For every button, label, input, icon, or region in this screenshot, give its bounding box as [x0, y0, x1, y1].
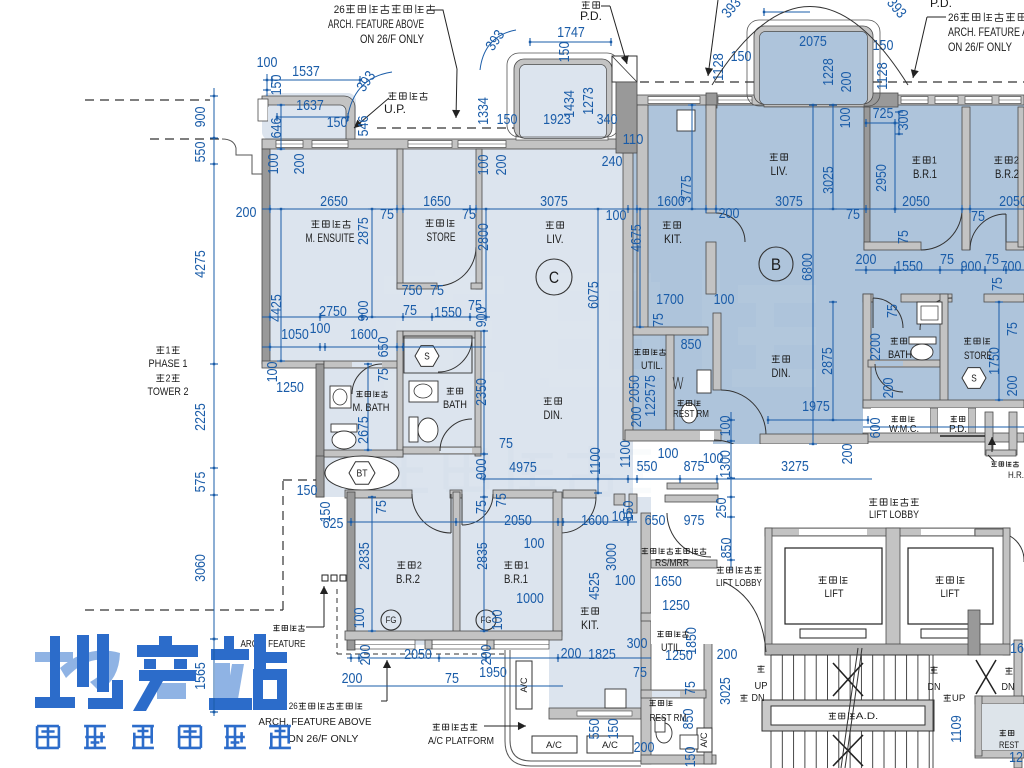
svg-text:2050: 2050 [504, 512, 532, 529]
svg-text:550: 550 [586, 719, 603, 740]
svg-text:1700: 1700 [656, 291, 684, 308]
svg-text:2800: 2800 [475, 223, 492, 251]
svg-text:100: 100 [475, 155, 492, 176]
svg-text:2875: 2875 [355, 217, 372, 245]
svg-text:75: 75 [430, 282, 444, 299]
svg-text:2: 2 [166, 374, 171, 385]
svg-text:ON 26/F ONLY: ON 26/F ONLY [360, 32, 424, 46]
svg-text:BATH: BATH [443, 399, 467, 411]
svg-text:KIT.: KIT. [581, 618, 599, 632]
svg-text:200: 200 [493, 155, 510, 176]
svg-text:1128: 1128 [874, 62, 891, 90]
svg-text:600: 600 [867, 418, 884, 439]
svg-text:100: 100 [351, 608, 368, 629]
svg-text:150: 150 [556, 42, 573, 63]
svg-text:75: 75 [499, 435, 513, 452]
svg-text:B.R.2: B.R.2 [995, 167, 1019, 181]
svg-text:PHASE 1: PHASE 1 [149, 358, 188, 370]
svg-text:900: 900 [473, 307, 490, 328]
svg-text:LIV.: LIV. [771, 164, 788, 178]
svg-text:BATH: BATH [888, 349, 912, 361]
svg-text:100: 100 [489, 610, 506, 631]
svg-text:725: 725 [873, 105, 894, 122]
svg-text:850: 850 [681, 336, 702, 353]
svg-text:2075: 2075 [799, 33, 827, 50]
svg-text:850: 850 [718, 538, 735, 559]
svg-text:A/C: A/C [546, 740, 563, 750]
svg-text:26: 26 [334, 4, 345, 16]
svg-text:A.D.: A.D. [856, 711, 879, 721]
svg-text:100: 100 [658, 445, 679, 462]
svg-text:200: 200 [357, 645, 374, 666]
svg-text:75: 75 [895, 230, 912, 244]
svg-text:200: 200 [717, 646, 738, 663]
svg-text:3060: 3060 [192, 554, 209, 582]
svg-text:150: 150 [620, 501, 637, 522]
svg-text:100: 100 [615, 572, 636, 589]
svg-text:200: 200 [561, 645, 582, 662]
svg-text:150: 150 [873, 37, 894, 54]
svg-text:2050: 2050 [404, 646, 432, 663]
svg-text:200: 200 [634, 739, 655, 756]
svg-text:750: 750 [402, 282, 423, 299]
svg-text:P.D.: P.D. [580, 9, 602, 23]
svg-text:240: 240 [602, 153, 623, 170]
svg-text:1228: 1228 [820, 58, 837, 86]
svg-text:1637: 1637 [296, 97, 324, 114]
svg-text:LIFT LOBBY: LIFT LOBBY [869, 509, 920, 521]
svg-text:75: 75 [642, 375, 659, 389]
svg-text:1050: 1050 [281, 326, 309, 343]
svg-text:DN: DN [1002, 682, 1015, 693]
svg-text:150: 150 [682, 747, 699, 768]
svg-text:DN: DN [752, 693, 765, 704]
svg-text:2350: 2350 [473, 378, 490, 406]
svg-text:75: 75 [380, 206, 394, 223]
svg-text:2: 2 [1014, 156, 1019, 167]
svg-text:M. ENSUITE: M. ENSUITE [306, 231, 355, 245]
svg-text:A/C PLATFORM: A/C PLATFORM [428, 736, 494, 747]
svg-text:1000: 1000 [516, 590, 544, 607]
svg-text:2050: 2050 [902, 193, 930, 210]
svg-text:1250: 1250 [276, 379, 304, 396]
svg-text:200: 200 [880, 378, 897, 399]
svg-text:B.R.1: B.R.1 [913, 167, 937, 181]
svg-text:2200: 2200 [867, 333, 884, 361]
svg-text:75: 75 [989, 277, 1006, 291]
svg-text:550: 550 [637, 458, 658, 475]
svg-text:550: 550 [192, 142, 209, 163]
svg-text:1650: 1650 [654, 573, 682, 590]
svg-text:200: 200 [839, 444, 856, 465]
svg-text:UTIL.: UTIL. [661, 642, 683, 654]
svg-text:75: 75 [633, 664, 647, 681]
svg-text:200: 200 [719, 205, 740, 222]
svg-text:300: 300 [627, 635, 648, 652]
svg-text:W.M.C.: W.M.C. [889, 424, 919, 435]
svg-text:4525: 4525 [586, 572, 603, 600]
svg-text:200: 200 [1004, 376, 1021, 397]
svg-text:STORE: STORE [964, 350, 992, 362]
svg-text:75: 75 [650, 313, 667, 327]
svg-text:2950: 2950 [873, 164, 890, 192]
svg-text:2835: 2835 [474, 542, 491, 570]
svg-text:200: 200 [478, 645, 495, 666]
svg-text:ARCH. FEATURE AB: ARCH. FEATURE AB [948, 25, 1024, 39]
svg-text:A/C: A/C [519, 677, 529, 693]
svg-text:3775: 3775 [678, 175, 695, 203]
svg-text:150: 150 [605, 719, 622, 740]
svg-text:3000: 3000 [603, 543, 620, 571]
svg-text:6800: 6800 [799, 253, 816, 281]
svg-text:200: 200 [291, 154, 308, 175]
svg-text:1537: 1537 [292, 63, 320, 80]
svg-text:UP: UP [755, 681, 768, 692]
svg-text:975: 975 [684, 512, 705, 529]
svg-text:150: 150 [297, 482, 318, 499]
svg-text:1109: 1109 [948, 715, 965, 743]
svg-text:900: 900 [192, 107, 209, 128]
svg-text:2: 2 [417, 561, 422, 572]
svg-text:S: S [971, 374, 977, 385]
svg-text:ARCH. FEATURE ABOVE: ARCH. FEATURE ABOVE [328, 17, 424, 31]
svg-text:2050: 2050 [999, 193, 1024, 210]
svg-text:75: 75 [445, 670, 459, 687]
svg-text:1950: 1950 [479, 664, 507, 681]
svg-text:75: 75 [375, 368, 392, 382]
svg-text:100: 100 [714, 291, 735, 308]
svg-text:3075: 3075 [540, 193, 568, 210]
svg-text:B.R.2: B.R.2 [396, 572, 420, 586]
svg-text:100: 100 [265, 154, 282, 175]
svg-text:100: 100 [606, 207, 627, 224]
svg-text:300: 300 [895, 110, 912, 131]
svg-text:1550: 1550 [895, 258, 923, 275]
svg-text:ON 26/F ONLY: ON 26/F ONLY [288, 734, 359, 745]
svg-text:150: 150 [497, 111, 518, 128]
svg-text:100: 100 [717, 416, 734, 437]
svg-text:P.D.: P.D. [930, 0, 952, 10]
svg-text:650: 650 [375, 337, 392, 358]
svg-text:26: 26 [289, 701, 298, 711]
svg-text:TOWER 2: TOWER 2 [148, 386, 189, 398]
svg-text:C: C [549, 268, 559, 287]
svg-text:100: 100 [310, 320, 331, 337]
svg-text:REST RM: REST RM [673, 409, 709, 420]
svg-text:150: 150 [731, 48, 752, 65]
svg-text:H.R.: H.R. [1008, 470, 1024, 480]
svg-text:16: 16 [1010, 640, 1024, 657]
svg-text:M. BATH: M. BATH [353, 402, 390, 414]
svg-text:A/C: A/C [602, 740, 619, 750]
svg-text:4975: 4975 [509, 459, 537, 476]
svg-text:1434: 1434 [561, 90, 578, 118]
svg-text:340: 340 [597, 111, 618, 128]
svg-text:110: 110 [623, 131, 644, 148]
svg-text:1600: 1600 [581, 512, 609, 529]
svg-text:250: 250 [713, 498, 730, 519]
svg-text:2650: 2650 [320, 193, 348, 210]
svg-text:LIFT LOBBY: LIFT LOBBY [716, 578, 762, 589]
svg-text:75: 75 [403, 302, 417, 319]
svg-text:LIV.: LIV. [547, 232, 564, 246]
svg-text:4425: 4425 [268, 294, 285, 322]
svg-text:900: 900 [473, 459, 490, 480]
svg-text:26: 26 [948, 12, 959, 24]
svg-text:75: 75 [473, 500, 490, 514]
svg-text:U.P.: U.P. [384, 102, 406, 116]
svg-text:575: 575 [192, 472, 209, 493]
svg-text:1747: 1747 [557, 24, 585, 41]
svg-text:B: B [771, 255, 781, 274]
svg-text:FG: FG [386, 615, 397, 625]
svg-text:ARCH. FEATURE: ARCH. FEATURE [241, 639, 306, 650]
svg-text:200: 200 [342, 670, 363, 687]
svg-text:700: 700 [1001, 258, 1022, 275]
svg-text:75: 75 [940, 251, 954, 268]
svg-text:12: 12 [1009, 749, 1023, 766]
svg-text:75: 75 [971, 208, 985, 225]
svg-text:A/C: A/C [699, 732, 709, 748]
svg-text:ON 26/F ONLY: ON 26/F ONLY [948, 40, 1012, 54]
svg-text:200: 200 [856, 251, 877, 268]
svg-text:150: 150 [268, 75, 285, 96]
svg-text:546: 546 [355, 116, 372, 137]
svg-text:75: 75 [884, 304, 901, 318]
svg-text:1100: 1100 [587, 447, 604, 475]
svg-text:2875: 2875 [819, 347, 836, 375]
svg-text:650: 650 [645, 512, 666, 529]
svg-text:B.R.1: B.R.1 [504, 572, 528, 586]
svg-text:4675: 4675 [628, 224, 645, 252]
svg-text:1100: 1100 [617, 440, 634, 468]
svg-text:200: 200 [236, 204, 257, 221]
svg-text:75: 75 [373, 500, 390, 514]
svg-text:3025: 3025 [717, 677, 734, 705]
svg-text:KIT.: KIT. [664, 232, 682, 246]
svg-text:646: 646 [268, 118, 285, 139]
svg-text:2835: 2835 [356, 542, 373, 570]
svg-text:S: S [424, 352, 430, 363]
svg-text:75: 75 [1004, 322, 1021, 336]
svg-text:REST: REST [999, 740, 1019, 750]
svg-text:6075: 6075 [585, 281, 602, 309]
svg-text:100: 100 [524, 535, 545, 552]
svg-text:625: 625 [323, 515, 344, 532]
svg-text:1: 1 [524, 561, 529, 572]
svg-text:200: 200 [628, 407, 645, 428]
svg-text:1650: 1650 [423, 193, 451, 210]
svg-text:3025: 3025 [820, 166, 837, 194]
svg-text:3075: 3075 [775, 193, 803, 210]
svg-text:900: 900 [961, 258, 982, 275]
svg-text:DN: DN [928, 682, 941, 693]
svg-text:DIN.: DIN. [772, 366, 791, 380]
svg-text:RS/MRR: RS/MRR [655, 558, 689, 569]
svg-text:DIN.: DIN. [544, 408, 563, 422]
svg-text:1334: 1334 [475, 97, 492, 125]
svg-text:STORE: STORE [427, 230, 456, 244]
svg-text:75: 75 [985, 251, 999, 268]
svg-text:REST RM: REST RM [650, 713, 687, 724]
svg-text:150: 150 [327, 114, 348, 131]
svg-text:2050: 2050 [626, 375, 643, 403]
svg-text:1: 1 [932, 156, 937, 167]
svg-text:875: 875 [684, 458, 705, 475]
svg-text:75: 75 [682, 681, 699, 695]
svg-text:1550: 1550 [434, 304, 462, 321]
svg-text:100: 100 [837, 108, 854, 129]
svg-text:1975: 1975 [802, 398, 830, 415]
svg-text:900: 900 [355, 301, 372, 322]
svg-text:1: 1 [166, 346, 171, 357]
svg-text:LIFT: LIFT [941, 588, 960, 600]
svg-text:LIFT: LIFT [825, 588, 844, 600]
svg-text:BT: BT [357, 469, 368, 480]
svg-text:75: 75 [493, 493, 510, 507]
svg-text:3275: 3275 [781, 458, 809, 475]
svg-text:200: 200 [838, 72, 855, 93]
svg-text:2675: 2675 [355, 416, 372, 444]
svg-text:1825: 1825 [588, 646, 616, 663]
svg-text:75: 75 [846, 206, 860, 223]
svg-text:4275: 4275 [192, 250, 209, 278]
svg-text:1250: 1250 [662, 597, 690, 614]
svg-text:1600: 1600 [350, 326, 378, 343]
svg-text:2750: 2750 [319, 303, 347, 320]
svg-text:P.D.: P.D. [949, 424, 967, 435]
svg-text:2225: 2225 [192, 403, 209, 431]
svg-text:UTIL.: UTIL. [641, 360, 663, 372]
svg-text:75: 75 [462, 206, 476, 223]
svg-text:1273: 1273 [580, 87, 597, 115]
svg-text:1300: 1300 [717, 450, 734, 478]
svg-text:100: 100 [257, 54, 278, 71]
svg-text:UP: UP [952, 693, 966, 703]
